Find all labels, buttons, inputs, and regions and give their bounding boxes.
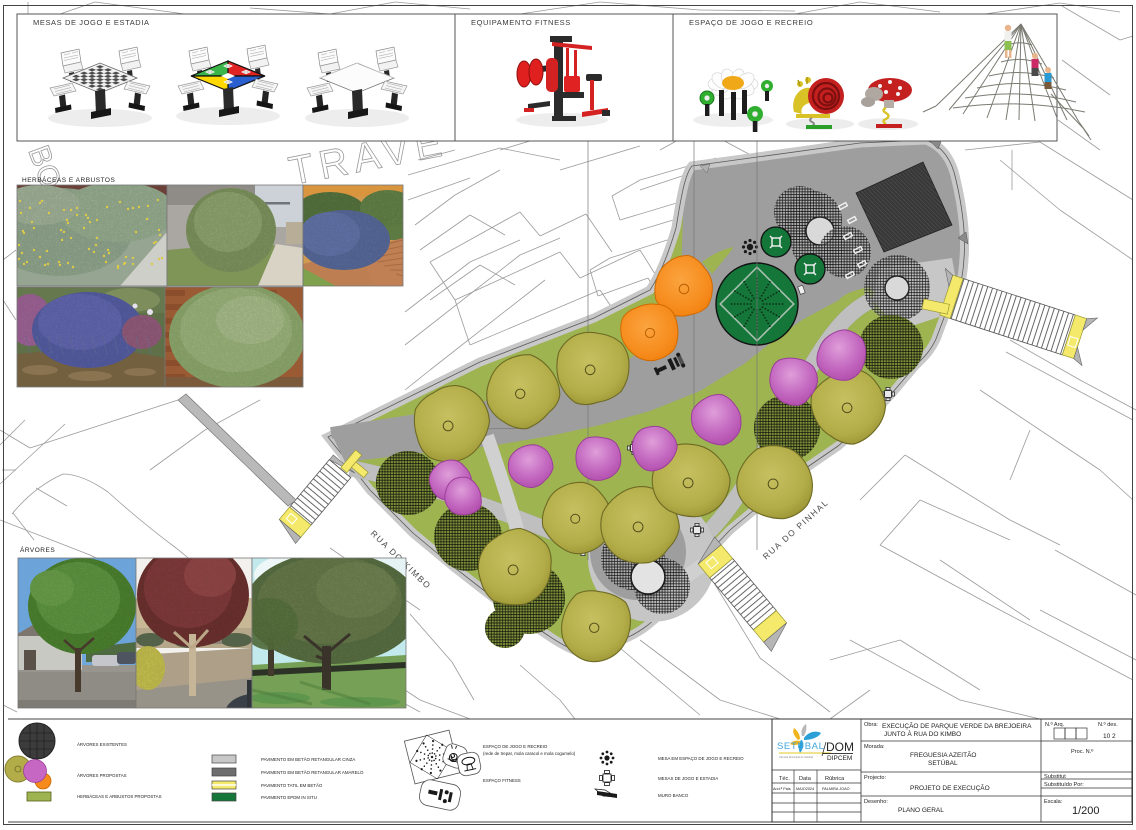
svg-text:PAVIMENTO TATIL EM BETÃO: PAVIMENTO TATIL EM BETÃO [261,783,323,788]
svg-text:Rúbrica: Rúbrica [825,776,845,782]
svg-text:EQUIPAMENTO FITNESS: EQUIPAMENTO FITNESS [471,18,571,27]
svg-text:PAVIMENTO EM BETÃO RETANGULAR: PAVIMENTO EM BETÃO RETANGULAR AMARELO [261,770,364,775]
svg-text:SETÚBAL: SETÚBAL [928,758,958,767]
svg-text:Data: Data [799,776,812,782]
svg-text:DOM: DOM [826,740,854,754]
svg-text:Téc.: Téc. [779,776,790,782]
svg-text:ÁRVORES EXISTENTES: ÁRVORES EXISTENTES [77,742,127,747]
svg-text:Obra:: Obra: [864,722,878,728]
svg-text:PALMIRA JOAO: PALMIRA JOAO [822,787,850,791]
svg-text:JUNTO À RUA DO KIMBO: JUNTO À RUA DO KIMBO [884,729,961,738]
svg-text:DIPCEM: DIPCEM [827,755,852,762]
svg-text:Morada:: Morada: [864,744,885,750]
svg-text:Proc. N.º: Proc. N.º [1071,748,1093,755]
svg-text:Desenho:: Desenho: [864,799,888,805]
svg-text:N.º Arq.: N.º Arq. [1045,721,1065,728]
svg-text:ÁRVORES PROPOSTAS: ÁRVORES PROPOSTAS [77,773,127,778]
svg-text:10 2: 10 2 [1103,733,1116,740]
svg-text:PLANO GERAL: PLANO GERAL [898,807,944,814]
svg-text:MURO BANCO: MURO BANCO [658,793,689,798]
svg-text:ÁRVORES: ÁRVORES [20,545,55,554]
svg-text:HERBÁCEAS E ARBUSTOS PROPOSTA: HERBÁCEAS E ARBUSTOS PROPOSTAS [77,794,162,799]
svg-text:Projecto:: Projecto: [864,775,887,781]
svg-text:ESPAÇO DE JOGO E RECREIO: ESPAÇO DE JOGO E RECREIO [483,744,548,749]
svg-text:Escala:: Escala: [1044,799,1063,805]
svg-text:N.º des.: N.º des. [1098,721,1118,728]
svg-text:SETUBAL: SETUBAL [777,741,825,752]
svg-text:EXECUÇÃO DE PARQUE VERDE DA BR: EXECUÇÃO DE PARQUE VERDE DA BREJOEIRA [882,721,1032,730]
svg-text:(rede de trepar, mola caracol: (rede de trepar, mola caracol e mola cog… [483,751,576,756]
svg-text:PROJETO DE EXECUÇÃO: PROJETO DE EXECUÇÃO [910,783,990,792]
svg-text:MAIO2024: MAIO2024 [796,787,814,791]
svg-text:MESAS DE JOGO E ESTADIA: MESAS DE JOGO E ESTADIA [33,18,150,27]
svg-text:Substitut: Substitut [1044,774,1066,780]
svg-text:HERBÁCEAS E ARBUSTOS: HERBÁCEAS E ARBUSTOS [22,175,115,184]
svg-text:Câmara Municipal de Setúbal: Câmara Municipal de Setúbal [779,755,813,759]
svg-text:FREGUESIA AZEITÃO: FREGUESIA AZEITÃO [910,750,976,759]
svg-text:ESPAÇO FITNESS: ESPAÇO FITNESS [483,778,521,783]
svg-text:ESPAÇO DE JOGO E RECREIO: ESPAÇO DE JOGO E RECREIO [689,18,813,27]
svg-text:PAVIMENTO EM BETÃO RETANGULAR: PAVIMENTO EM BETÃO RETANGULAR CINZA [261,757,355,762]
svg-text:MESAS DE JOGO E ESTADIA: MESAS DE JOGO E ESTADIA [658,776,718,781]
svg-text:MESA EM ESPAÇO DE JOGO E RECRE: MESA EM ESPAÇO DE JOGO E RECREIO [658,756,744,761]
svg-text:PAVIMENTO EPDM IN SITU: PAVIMENTO EPDM IN SITU [261,795,317,800]
svg-text:1/200: 1/200 [1072,805,1100,817]
svg-text:Substituído Por:: Substituído Por: [1044,782,1084,788]
svg-text:Arct.ª Pais: Arct.ª Pais [773,787,791,791]
